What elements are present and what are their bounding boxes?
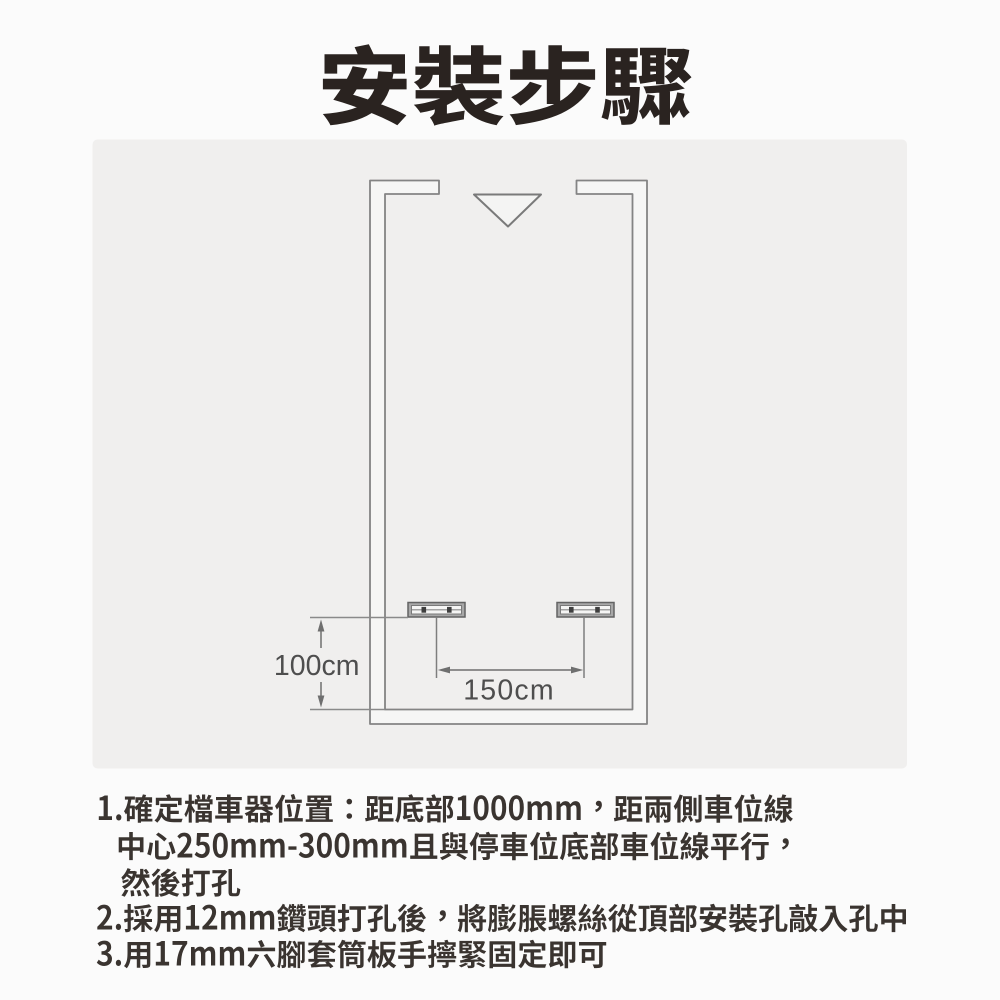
svg-text:150cm: 150cm [463, 674, 555, 706]
svg-text:100cm: 100cm [274, 650, 360, 682]
